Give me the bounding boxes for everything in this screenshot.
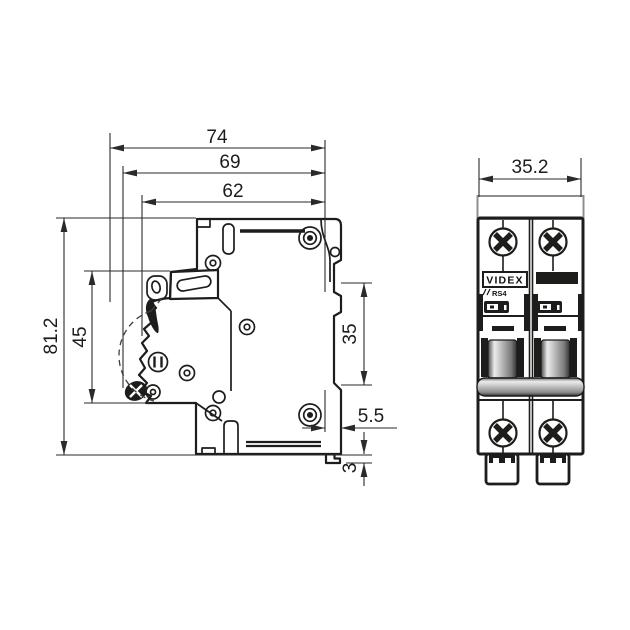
technical-drawing-canvas: 74 69 62 81.2 45 xyxy=(0,0,630,630)
dim-label-35-2: 35.2 xyxy=(512,157,549,178)
dim-label-35: 35 xyxy=(340,323,361,344)
series-prefix-icon xyxy=(483,289,490,295)
pole-divider xyxy=(530,218,533,454)
side-body-outline xyxy=(139,219,341,454)
top-tab xyxy=(197,219,210,227)
mechanism-edge xyxy=(218,298,231,311)
dim-label-3: 3 xyxy=(340,463,361,474)
front-ear-hole xyxy=(151,280,162,294)
dimension-62: 62 xyxy=(142,181,325,205)
top-slot xyxy=(223,224,234,254)
latch-lever xyxy=(146,299,159,333)
toggle-lever xyxy=(488,340,517,378)
series-label: RS4 xyxy=(492,289,507,298)
dimensions-side-view: 74 69 62 81.2 45 xyxy=(41,127,397,486)
toggle-lever-side xyxy=(176,275,211,292)
dim-label-45: 45 xyxy=(70,326,91,347)
dimension-35: 35 xyxy=(340,283,367,385)
bottom-slot xyxy=(224,421,238,453)
terminal-slot-lines xyxy=(503,220,553,453)
dimension-81-2: 81.2 xyxy=(41,218,67,455)
front-view: VIDEX RS4 xyxy=(477,196,584,484)
dimension-3: 3 xyxy=(340,432,367,486)
dimension-5-5: 5.5 xyxy=(302,406,397,431)
indicator-window xyxy=(484,301,562,313)
ear-hole xyxy=(331,248,340,257)
dim-label-5-5: 5.5 xyxy=(358,406,384,427)
lever-tie-bar xyxy=(477,378,584,396)
dimension-45: 45 xyxy=(70,271,95,403)
rivet-concentric-icon xyxy=(299,227,321,426)
dim-label-69: 69 xyxy=(219,152,240,173)
front-body-outline xyxy=(478,218,583,454)
dimension-69: 69 xyxy=(123,152,325,176)
dimension-74: 74 xyxy=(110,127,325,151)
dim-label-81-2: 81.2 xyxy=(41,318,62,355)
toggle-lever xyxy=(541,340,570,378)
terminal-screw-side-icon xyxy=(149,353,168,372)
top-din-clip xyxy=(478,196,584,219)
front-ear xyxy=(147,276,167,300)
brand-logo: VIDEX xyxy=(486,275,524,287)
drawing-svg: 74 69 62 81.2 45 xyxy=(0,0,630,630)
side-view xyxy=(119,219,341,463)
rivet-icon xyxy=(146,256,255,421)
right-pole-label-bar xyxy=(536,272,578,284)
dim-label-74: 74 xyxy=(206,127,228,148)
dim-label-62: 62 xyxy=(222,181,243,202)
terminal-guard-foot xyxy=(486,454,569,484)
terminal-screw-icon xyxy=(490,229,567,447)
dimension-35-2: 35.2 xyxy=(479,157,581,197)
